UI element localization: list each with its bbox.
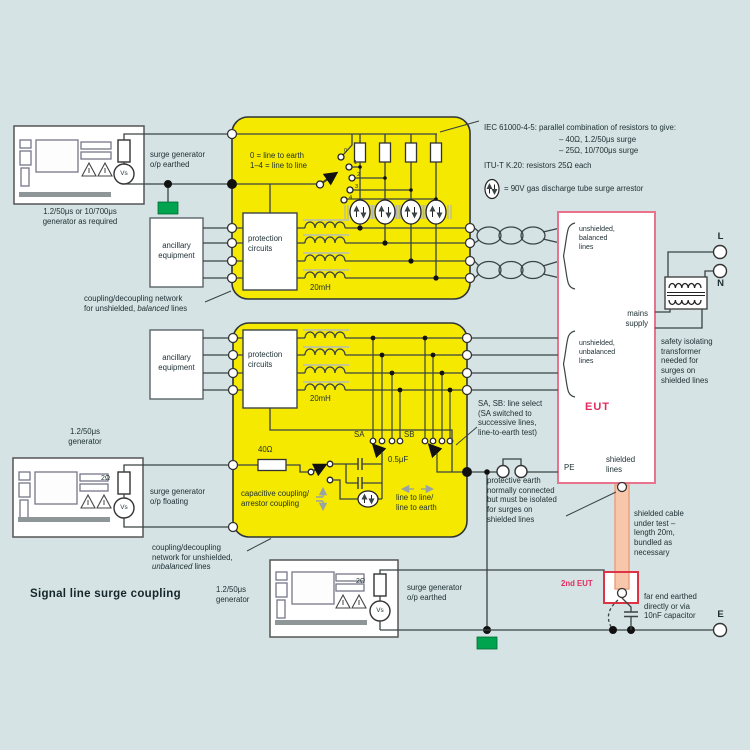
- cdn1-selector-note: 0 = line to earth 1–4 = line to line: [250, 151, 307, 170]
- iec-note-line1: IEC 61000-4-5: parallel combination of r…: [484, 123, 676, 133]
- cdn2-inductance-label: 20mH: [310, 394, 331, 404]
- eut-title: EUT: [585, 401, 610, 415]
- eut-pe-label: PE: [564, 463, 574, 473]
- gen3-vs-label: Vs: [373, 607, 387, 615]
- earth-rail: [380, 624, 727, 637]
- protection-circuits-2-label: protection circuits: [248, 350, 282, 369]
- second-eut-label: 2nd EUT: [561, 579, 593, 589]
- surge-coupling-diagram: 1.2/50μs or 10/700μs generator as requir…: [0, 0, 750, 750]
- terminal-n-label: N: [714, 278, 727, 290]
- far-end-note: far end earthed directly or via 10nF cap…: [644, 592, 697, 621]
- ancillary-equipment-1-label: ancillary equipment: [152, 241, 201, 260]
- selector-position-1: 1: [354, 160, 357, 167]
- gen3-caption: 1.2/50μs generator: [216, 585, 249, 604]
- gen2-resistor-label: 2Ω: [101, 475, 110, 484]
- selector-position-3: 3: [355, 184, 358, 191]
- gen2-caption: 1.2/50μs generator: [50, 427, 120, 446]
- eut-balanced-label: unshielded, balanced lines: [579, 226, 615, 252]
- gen3-resistor-label: 2Ω: [356, 578, 365, 587]
- unbalanced-lines: [472, 338, 559, 390]
- switch-sb-label: SB: [404, 430, 414, 440]
- shielded-cable: [604, 483, 638, 604]
- shielded-cable-note: shielded cable under test – length 20m, …: [634, 509, 684, 558]
- cdn2-resistor-label: 40Ω: [258, 445, 273, 455]
- ancillary-equipment-2-label: ancillary equipment: [152, 353, 201, 372]
- gen1-caption: 1.2/50μs or 10/700μs generator as requir…: [20, 207, 140, 226]
- sa-sb-note: SA, SB: line select (SA switched to succ…: [478, 399, 542, 438]
- cdn2-capacitor-label: 0.5μF: [388, 455, 408, 465]
- iec-note-item2: – 25Ω, 10/700μs surge: [559, 146, 638, 156]
- gen1-vs-label: Vs: [117, 170, 131, 178]
- cdn1-inductance-label: 20mH: [310, 283, 331, 293]
- cdn2-caption: coupling/decoupling network for unshield…: [152, 543, 233, 572]
- cdn2-coupling-note: capacitive coupling/ arrestor coupling: [241, 489, 309, 508]
- diagram-title: Signal line surge coupling: [30, 587, 181, 601]
- protection-circuits-1-label: protection circuits: [248, 234, 282, 253]
- cdn2-line-select-note: line to line/ line to earth: [396, 493, 437, 512]
- terminal-e-label: E: [714, 609, 727, 621]
- selector-position-2: 2: [357, 172, 360, 179]
- selector-position-0: 0: [344, 148, 347, 155]
- gen2-vs-label: Vs: [117, 504, 131, 512]
- cdn1-caption: coupling/decoupling network for unshield…: [84, 294, 187, 313]
- transformer-note: safety isolating transformer needed for …: [661, 337, 713, 386]
- terminal-l-label: L: [714, 231, 727, 243]
- eut-mains-label: mains supply: [600, 309, 648, 328]
- twisted-pair-lines: [475, 227, 559, 279]
- iec-note-item1: – 40Ω, 1.2/50μs surge: [559, 135, 636, 145]
- gdt-legend-text: = 90V gas discharge tube surge arrestor: [504, 184, 643, 194]
- schematic-canvas: [0, 0, 750, 750]
- selector-position-4: 4: [349, 195, 352, 202]
- gen3-note: surge generator o/p earthed: [407, 583, 462, 602]
- eut-shielded-label: shielded lines: [606, 455, 635, 474]
- eut-unbalanced-label: unshielded, unbalanced lines: [579, 340, 615, 366]
- itu-note: ITU-T K.20: resistors 25Ω each: [484, 161, 592, 171]
- gen1-note: surge generator o/p earthed: [150, 150, 205, 169]
- protective-earth-note: protective earth normally connected but …: [487, 476, 557, 525]
- switch-sa-label: SA: [354, 430, 364, 440]
- gen2-note: surge generator o/p floating: [150, 487, 205, 506]
- gdt-legend-symbol: [485, 180, 499, 199]
